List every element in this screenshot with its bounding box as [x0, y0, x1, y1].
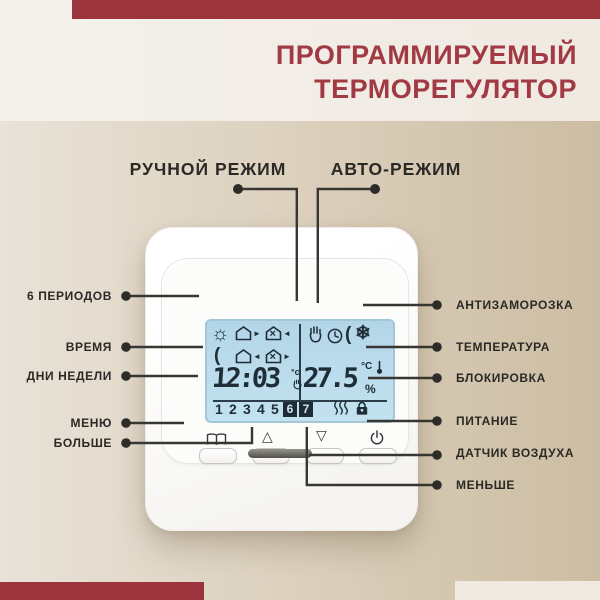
- thermostat-device: ☼ ► × ◄ ( ◄: [145, 227, 418, 531]
- lcd-display: ☼ ► × ◄ ( ◄: [205, 319, 395, 423]
- day-7-active: 7: [299, 402, 313, 417]
- menu-book-icon: [206, 433, 227, 446]
- clock-auto-icon: [327, 328, 343, 344]
- page-title-line2: ТЕРМОРЕГУЛЯТОР: [276, 72, 577, 106]
- callout-label-periods: 6 ПЕРИОДОВ: [0, 289, 112, 303]
- time-value: 12:03: [211, 365, 279, 392]
- sun-icon: ☼: [211, 324, 229, 344]
- day-3: 3: [243, 402, 251, 417]
- air-sensor-slot: [248, 449, 312, 458]
- arrow-left-icon: ◄: [253, 353, 261, 361]
- house-leave-icon: [235, 326, 252, 341]
- arrow-left-icon: ◄: [283, 330, 291, 338]
- callout-label-antifreeze: АНТИЗАМОРОЗКА: [456, 298, 573, 312]
- arrow-right-icon: ►: [283, 353, 291, 361]
- callout-label-weekdays: ДНИ НЕДЕЛИ: [0, 369, 112, 383]
- callout-label-time: ВРЕМЯ: [0, 340, 112, 354]
- callout-label-air-sensor: ДАТЧИК ВОЗДУХА: [456, 446, 574, 460]
- temperature-value: 27.5: [302, 365, 357, 392]
- arrow-up-icon: △: [262, 429, 273, 443]
- temperature-unit: °C: [361, 361, 372, 372]
- arrow-right-icon: ►: [253, 330, 261, 338]
- callout-label-less: МЕНЬШЕ: [456, 478, 515, 492]
- bottom-accent-bar: [0, 582, 204, 600]
- tools-icon: ×: [270, 352, 276, 363]
- callout-label-power: ПИТАНИЕ: [456, 414, 518, 428]
- top-accent-bar: [72, 0, 600, 19]
- down-button[interactable]: [306, 448, 344, 464]
- power-icon: [369, 430, 385, 445]
- day-6-active: 6: [283, 402, 297, 417]
- lock-icon: [355, 401, 369, 416]
- auto-mode-label: АВТО-РЕЖИМ: [276, 159, 516, 180]
- menu-button[interactable]: [199, 448, 237, 464]
- heating-waves-icon: [331, 401, 349, 415]
- percent-sign: %: [365, 382, 376, 396]
- bottom-right-block: [455, 581, 600, 600]
- thermostat-front-panel: ☼ ► × ◄ ( ◄: [162, 259, 408, 463]
- power-button[interactable]: [359, 448, 397, 464]
- thermometer-icon: [376, 360, 383, 375]
- day-5: 5: [271, 402, 279, 417]
- day-1: 1: [215, 402, 223, 417]
- arrow-down-icon: ▽: [316, 428, 327, 442]
- house-work-icon: ×: [265, 326, 282, 341]
- hand-manual-icon: [307, 325, 324, 344]
- tools-icon: ×: [270, 329, 276, 340]
- day-4: 4: [257, 402, 265, 417]
- callout-label-menu: МЕНЮ: [0, 416, 112, 430]
- page-title-line1: ПРОГРАММИРУЕМЫЙ: [276, 38, 577, 72]
- callout-label-more: БОЛЬШЕ: [0, 436, 112, 450]
- moon-frost-icon: (: [345, 325, 351, 344]
- house-work-icon: ×: [265, 349, 282, 364]
- callout-label-temperature: ТЕМПЕРАТУРА: [456, 340, 550, 354]
- day-2: 2: [229, 402, 237, 417]
- snowflake-icon: ❄: [355, 324, 371, 343]
- infographic-root: ПРОГРАММИРУЕМЫЙ ТЕРМОРЕГУЛЯТОР РУЧНОЙ РЕ…: [0, 0, 600, 600]
- time-unit: °c: [291, 367, 300, 377]
- page-title: ПРОГРАММИРУЕМЫЙ ТЕРМОРЕГУЛЯТОР: [276, 38, 577, 106]
- house-return-icon: [235, 349, 252, 364]
- callout-label-lock: БЛОКИРОВКА: [456, 371, 546, 385]
